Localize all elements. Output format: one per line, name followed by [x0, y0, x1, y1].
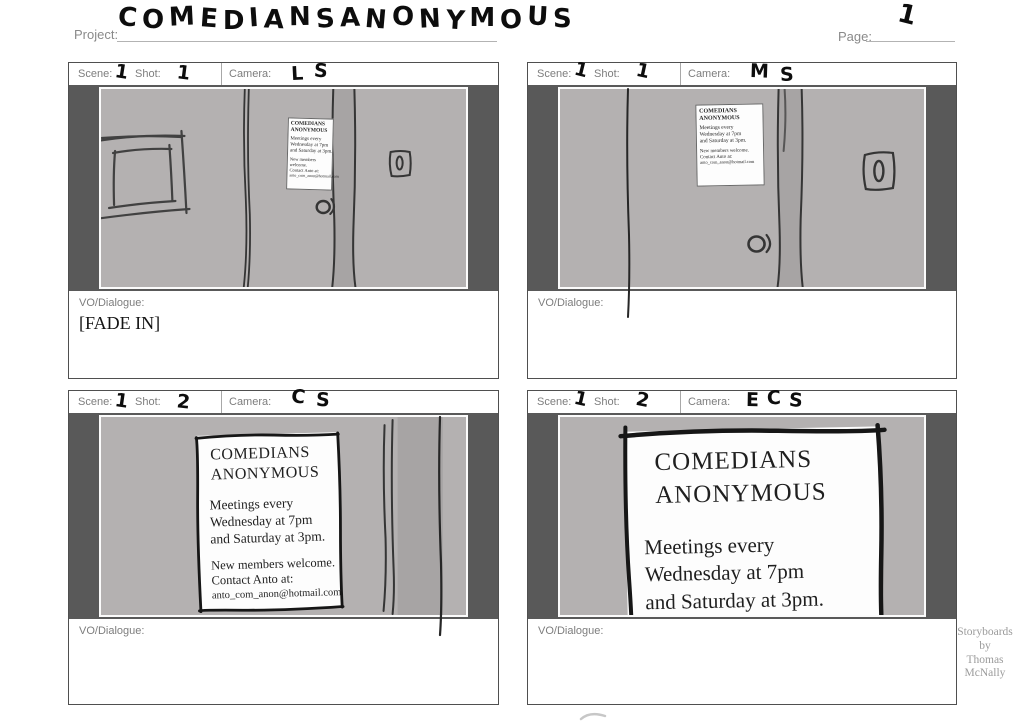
shot-label: Shot:	[594, 68, 620, 80]
door-frame-sketch	[384, 420, 394, 614]
shot-value: 1	[175, 60, 192, 84]
poster: COMEDIANS ANONYMOUS Meetings every Wedne…	[196, 432, 343, 612]
poster-email: anto_com_anon@hotmail.com	[289, 173, 333, 179]
scene-value: 1	[113, 60, 130, 84]
project-title: COMEDIANS ANONYMOUS	[118, 4, 577, 34]
vo-label: VO/Dialogue:	[538, 297, 603, 309]
header-divider	[221, 391, 222, 413]
shot-value: 1	[634, 60, 651, 84]
panel-header: Scene: 1 Shot: 2 Camera: CS	[69, 391, 498, 414]
page-underline	[866, 41, 955, 42]
poster: COMEDIANS ANONYMOUS Meetings every Wedne…	[624, 426, 884, 617]
header-divider	[680, 63, 681, 85]
shot-label: Shot:	[135, 396, 161, 408]
vo-dialogue: [FADE IN]	[79, 313, 160, 334]
door-handle-sketch	[317, 199, 334, 214]
vo-label: VO/Dialogue:	[79, 297, 144, 309]
light-switch-sketch	[390, 151, 411, 176]
scene-label: Scene:	[537, 396, 571, 408]
header-divider	[221, 63, 222, 85]
vo-section: VO/Dialogue:	[528, 619, 956, 704]
shot-label: Shot:	[594, 396, 620, 408]
camera-value: CS	[291, 388, 341, 412]
project-underline	[117, 41, 497, 42]
vo-section: VO/Dialogue:	[69, 619, 498, 704]
camera-value: MS	[750, 60, 805, 84]
frame-image: COMEDIANS ANONYMOUS Meetings every Wedne…	[99, 87, 468, 289]
frame-image: COMEDIANS ANONYMOUS Meetings every Wedne…	[99, 415, 468, 617]
door-strip	[779, 89, 802, 287]
door-frame-sketch	[244, 89, 250, 287]
scene-label: Scene:	[78, 396, 112, 408]
storyboard-panel-3: Scene: 1 Shot: 2 Camera: CS	[68, 390, 499, 705]
camera-label: Camera:	[229, 68, 271, 80]
credit-text: Storyboards by Thomas McNally	[948, 626, 1022, 681]
scene-value: 1	[572, 388, 589, 412]
door-strip	[398, 417, 443, 615]
poster-body: Meetings every Wednesday at 7pm and Satu…	[699, 124, 762, 145]
pencil-smudge	[578, 710, 608, 723]
poster: COMEDIANS ANONYMOUS Meetings every Wedne…	[695, 103, 764, 186]
picture-frame-sketch	[101, 131, 189, 219]
scene-label: Scene:	[537, 68, 571, 80]
header-divider	[680, 391, 681, 413]
poster-footer: New members welcome. Contact Anto at:	[290, 157, 334, 174]
wall-sketch-svg	[101, 89, 466, 287]
storyboard-panel-2: Scene: 1 Shot: 1 Camera: MS	[527, 62, 957, 379]
poster-email: anto_com_anon@hotmail.com	[700, 159, 763, 165]
frame-image: COMEDIANS ANONYMOUS Meetings every Wedne…	[558, 415, 926, 617]
panel-header: Scene: 1 Shot: 2 Camera: ECS	[528, 391, 956, 414]
page-number: 1	[895, 0, 919, 32]
storyboard-panel-1: Scene: 1 Shot: 1 Camera: LS	[68, 62, 499, 379]
vo-label: VO/Dialogue:	[79, 625, 144, 637]
camera-value: ECS	[746, 388, 811, 412]
poster-title: COMEDIANS ANONYMOUS	[291, 120, 335, 134]
project-label: Project:	[74, 27, 118, 42]
vo-section: VO/Dialogue:	[528, 291, 956, 378]
scene-label: Scene:	[78, 68, 112, 80]
storyboard-page: Project: COMEDIANS ANONYMOUS Page: 1 Sce…	[0, 0, 1024, 723]
poster-border-sketch	[622, 424, 886, 617]
poster-border-sketch	[194, 430, 345, 614]
scene-value: 1	[572, 60, 589, 84]
shot-value: 2	[175, 388, 192, 412]
frame-letterbox: COMEDIANS ANONYMOUS Meetings every Wedne…	[69, 413, 498, 619]
camera-value: LS	[291, 60, 340, 84]
shot-label: Shot:	[135, 68, 161, 80]
vo-label: VO/Dialogue:	[538, 625, 603, 637]
door-handle-sketch	[749, 235, 771, 252]
panel-header: Scene: 1 Shot: 1 Camera: LS	[69, 63, 498, 86]
frame-letterbox: COMEDIANS ANONYMOUS Meetings every Wedne…	[528, 413, 956, 619]
poster: COMEDIANS ANONYMOUS Meetings every Wedne…	[286, 117, 334, 190]
camera-label: Camera:	[688, 68, 730, 80]
poster-footer: New members welcome. Contact Anto at:	[700, 147, 763, 160]
light-switch-sketch	[864, 152, 895, 189]
vo-section: VO/Dialogue: [FADE IN]	[69, 291, 498, 378]
frame-letterbox: COMEDIANS ANONYMOUS Meetings every Wedne…	[528, 85, 956, 291]
camera-label: Camera:	[688, 396, 730, 408]
shot-value: 2	[634, 388, 651, 412]
poster-title: COMEDIANS ANONYMOUS	[699, 107, 762, 122]
storyboard-panel-4: Scene: 1 Shot: 2 Camera: ECS COMEDIANS A…	[527, 390, 957, 705]
panel-header: Scene: 1 Shot: 1 Camera: MS	[528, 63, 956, 86]
poster-body: Meetings every Wednesday at 7pm and Satu…	[290, 136, 334, 155]
frame-image: COMEDIANS ANONYMOUS Meetings every Wedne…	[558, 87, 926, 289]
scene-value: 1	[113, 388, 130, 412]
frame-letterbox: COMEDIANS ANONYMOUS Meetings every Wedne…	[69, 85, 498, 291]
camera-label: Camera:	[229, 396, 271, 408]
